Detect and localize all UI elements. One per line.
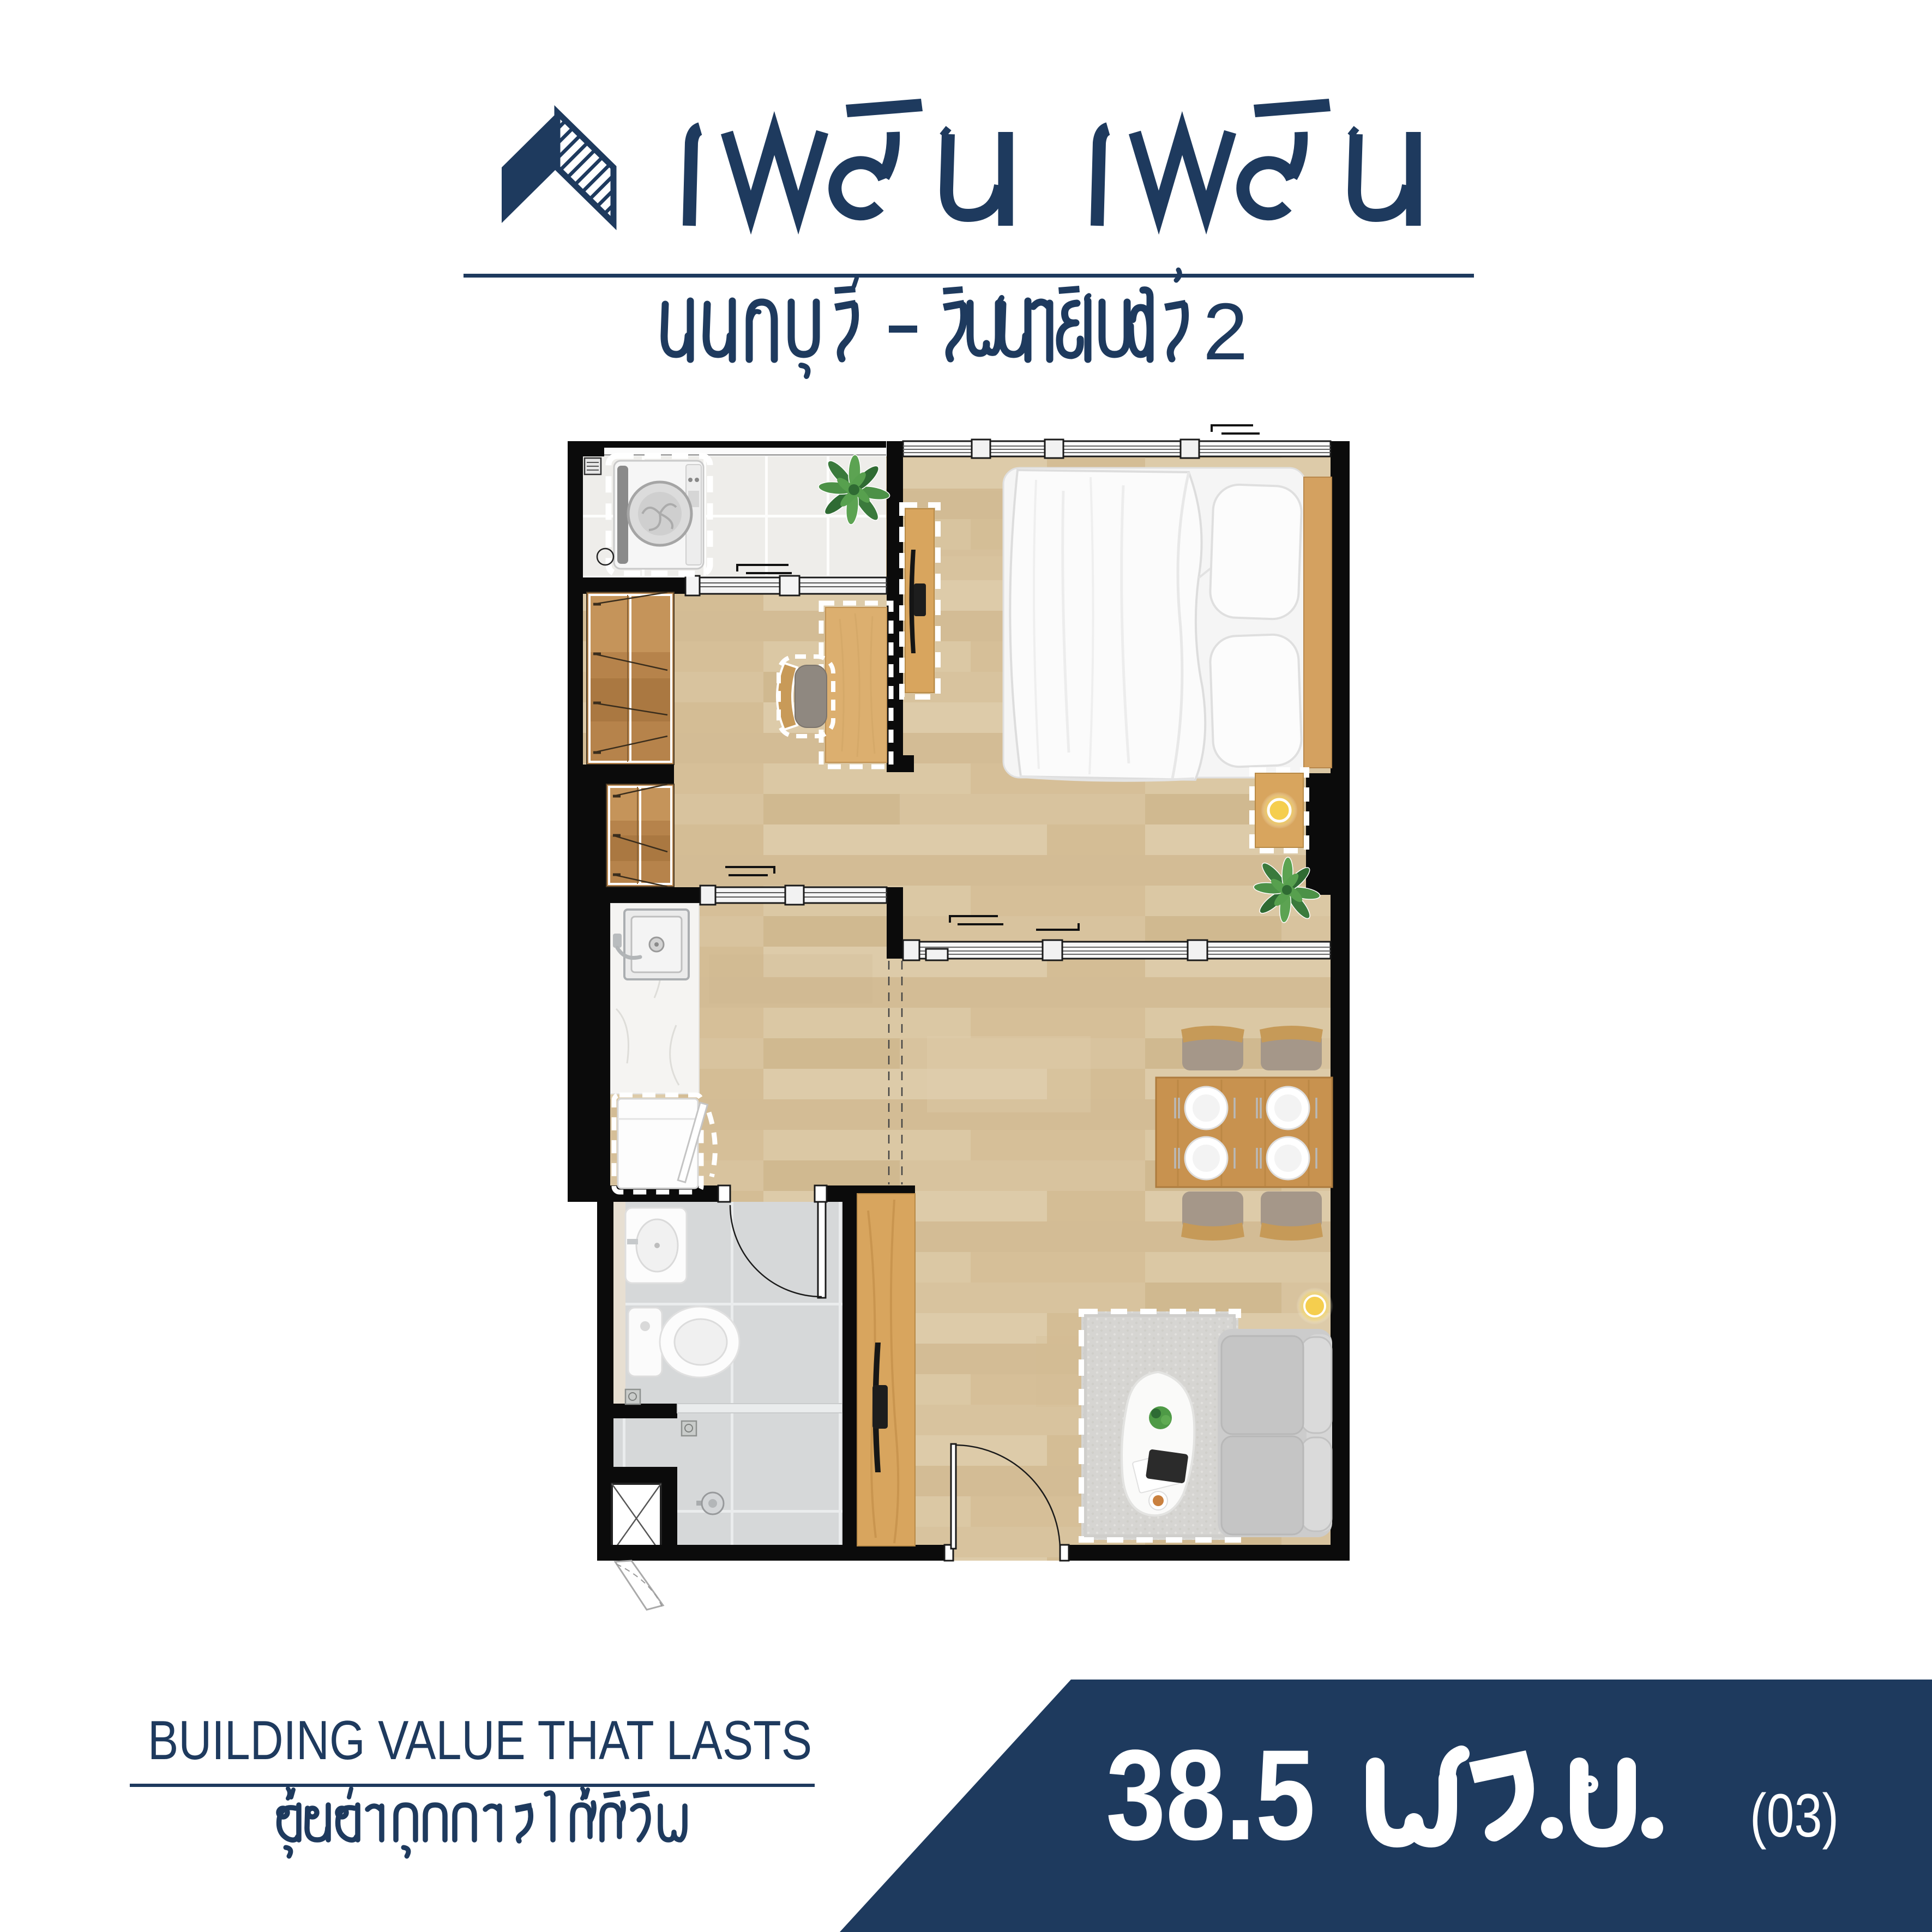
svg-text:(03): (03) (1750, 1781, 1839, 1850)
svg-text:38.5: 38.5 (1106, 1723, 1315, 1867)
svg-text:BUILDING VALUE THAT LASTS: BUILDING VALUE THAT LASTS (148, 1710, 812, 1771)
svg-text:2: 2 (1203, 287, 1248, 377)
